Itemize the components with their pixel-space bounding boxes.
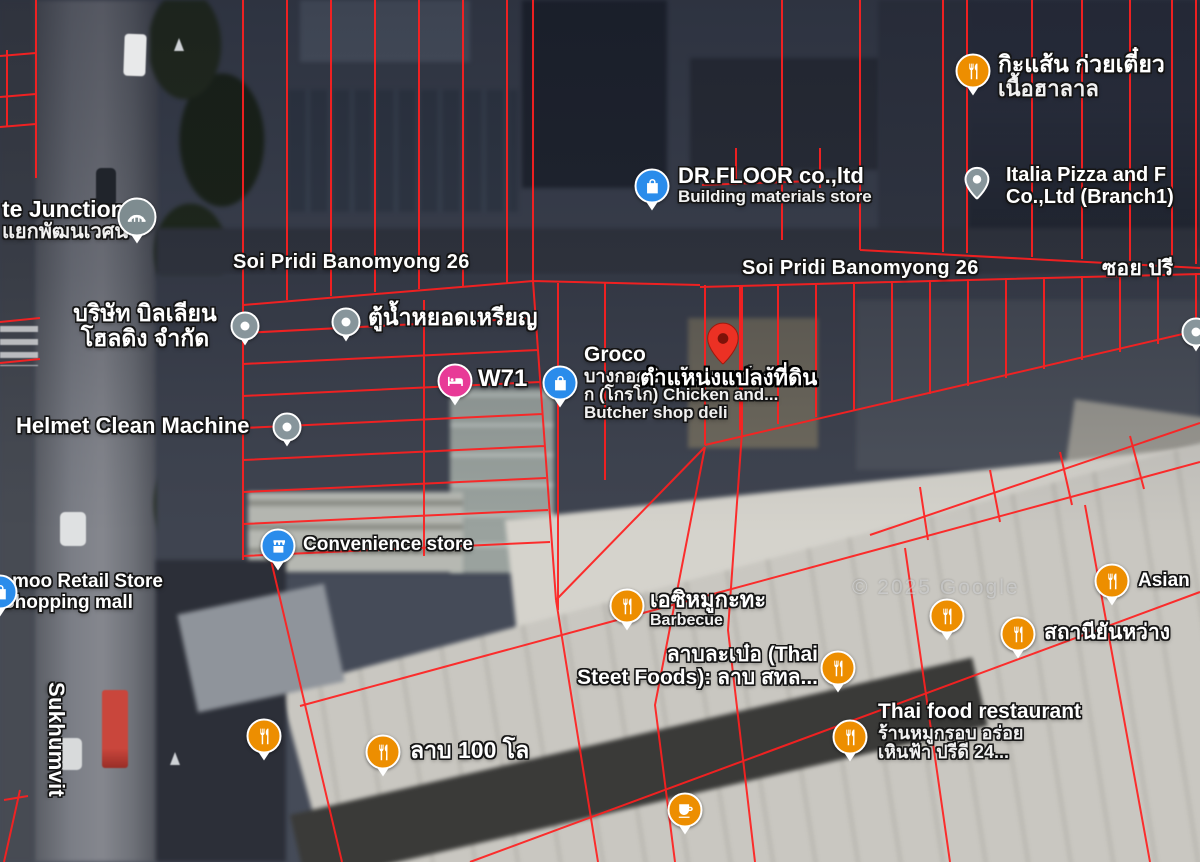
poi-label-w71[interactable]: W71: [478, 366, 527, 392]
poi-label-thai-food[interactable]: Thai food restaurant ร้านหมูกรอบ อร่อย เ…: [878, 701, 1081, 763]
poi-label-lab-labo[interactable]: ลาบละเบ๋อ (Thai Steet Foods): ลาบ สทล...: [538, 644, 818, 689]
poi-title: DR.FLOOR co.,ltd: [678, 164, 872, 188]
place-pin-icon[interactable]: [962, 166, 992, 201]
poi-line: Groco: [584, 344, 778, 367]
bridge-icon[interactable]: [118, 198, 157, 237]
road-label-soi-right: Soi Pridi Banomyong 26: [742, 258, 979, 280]
restaurant-icon[interactable]: [1001, 617, 1036, 652]
cafe-icon[interactable]: [668, 793, 703, 828]
restaurant-icon[interactable]: [610, 589, 645, 624]
poi-label-billion-holding[interactable]: บริษัท บิลเลียน โฮลดิง จำกัด: [60, 301, 230, 351]
poi-line: moo Retail Store: [12, 572, 163, 593]
poi-line: เหินฟ้า ปรีดี 24...: [878, 743, 1081, 762]
poi-line: Steet Foods): ลาบ สทล...: [538, 667, 818, 690]
poi-label-barbecue[interactable]: เอซิหมูกะทะ Barbecue: [650, 588, 766, 629]
place-dot-icon[interactable]: [231, 312, 260, 341]
restaurant-icon[interactable]: [247, 719, 282, 754]
poi-label-italia-pizza[interactable]: Italia Pizza and F Co.,Ltd (Branch1): [1006, 165, 1174, 208]
restaurant-icon[interactable]: [366, 735, 401, 770]
google-attribution: © 2025 Google: [852, 576, 1020, 600]
restaurant-icon[interactable]: [1095, 564, 1130, 599]
store-icon[interactable]: [543, 366, 578, 401]
store-icon[interactable]: [635, 169, 670, 204]
map-canvas[interactable]: © 2025 Google Soi Pridi Banomyong 26 Soi…: [0, 0, 1200, 862]
poi-label-noodle-halal[interactable]: กิะแส้น ก่วยเตี๋ยว เนื้อฮาลาล: [998, 52, 1165, 101]
poi-line: Co.,Ltd (Branch1): [1006, 187, 1174, 209]
poi-line: Shopping mall: [2, 593, 163, 614]
place-dot-icon[interactable]: [273, 413, 302, 442]
restaurant-icon[interactable]: [821, 651, 856, 686]
poi-label-station[interactable]: สถานียันหว่าง: [1044, 622, 1170, 645]
poi-line: Butcher shop deli: [584, 404, 778, 422]
road-label-sukhumvit: Sukhumvit: [44, 682, 68, 797]
poi-label-convenience[interactable]: Convenience store: [303, 535, 473, 556]
poi-line: บริษัท บิลเลียน: [60, 301, 230, 326]
poi-label-helmet-clean[interactable]: Helmet Clean Machine: [16, 414, 250, 438]
destination-marker-label: ตำแหน่งแปลงที่ดิน: [640, 366, 817, 390]
poi-line: เอซิหมูกะทะ: [650, 588, 766, 612]
poi-line: ลาบละเบ๋อ (Thai: [538, 644, 818, 667]
restaurant-icon[interactable]: [930, 599, 965, 634]
poi-label-dr-floor[interactable]: DR.FLOOR co.,ltd Building materials stor…: [678, 164, 872, 206]
poi-label-lab-100[interactable]: ลาบ 100 โล: [410, 738, 529, 763]
poi-line: เนื้อฮาลาล: [998, 77, 1165, 101]
poi-label-junction[interactable]: te Junction แยกพัฒนเวศน์: [2, 197, 128, 243]
poi-label-water-vending[interactable]: ตู้น้ำหยอดเหรียญ: [368, 305, 537, 330]
hotel-icon[interactable]: [438, 364, 473, 399]
poi-line: te Junction: [2, 197, 128, 222]
road-label-soi-left: Soi Pridi Banomyong 26: [233, 252, 470, 274]
poi-label-moo-retail[interactable]: moo Retail Store Shopping mall: [12, 572, 163, 613]
poi-line: แยกพัฒนเวศน์: [2, 222, 128, 244]
road-label-soi-thai: ซอย ปรี: [1102, 258, 1173, 281]
poi-line: Barbecue: [650, 612, 766, 629]
restaurant-icon[interactable]: [956, 54, 991, 89]
poi-line: โฮลดิง จำกัด: [60, 326, 230, 351]
destination-pin-icon[interactable]: [703, 321, 743, 367]
poi-line: ร้านหมูกรอบ อร่อย: [878, 724, 1081, 743]
poi-line: กิะแส้น ก่วยเตี๋ยว: [998, 52, 1165, 77]
poi-subtitle: Building materials store: [678, 188, 872, 206]
store-icon[interactable]: [261, 529, 296, 564]
poi-line: Italia Pizza and F: [1006, 165, 1174, 187]
poi-line: Thai food restaurant: [878, 701, 1081, 724]
place-dot-icon[interactable]: [332, 308, 361, 337]
poi-label-asian[interactable]: Asian: [1138, 571, 1190, 592]
restaurant-icon[interactable]: [833, 720, 868, 755]
